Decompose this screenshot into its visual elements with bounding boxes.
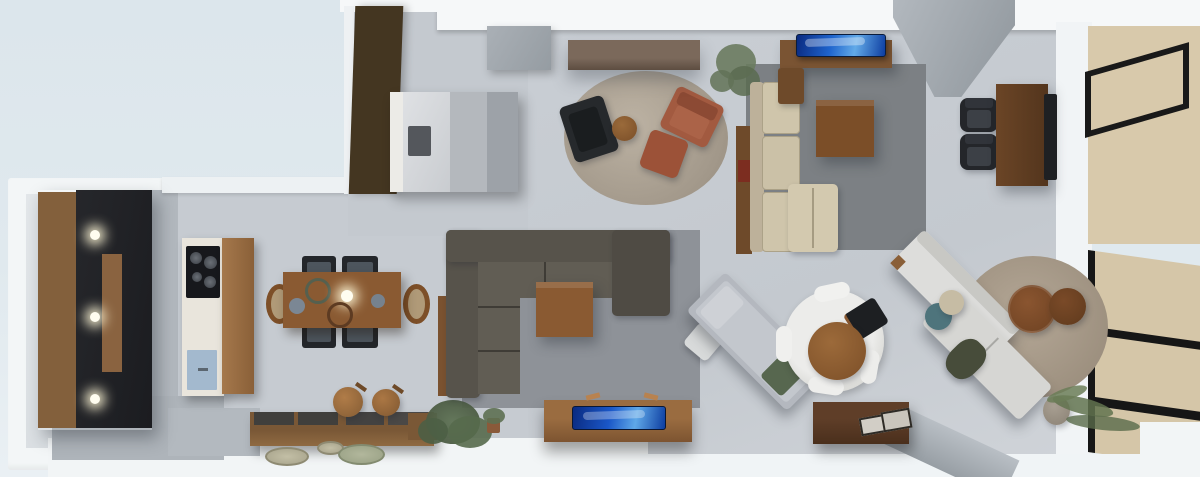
dining-chair-end-right — [403, 284, 430, 324]
sectional-beige[interactable] — [734, 64, 844, 256]
tv-bottom — [572, 406, 666, 430]
dining-set[interactable] — [262, 244, 434, 350]
table-plate-2 — [371, 294, 385, 308]
bed-headboard — [390, 92, 403, 192]
chair-seat — [967, 147, 991, 166]
burner-4 — [204, 276, 216, 288]
office-chair-2 — [960, 134, 998, 170]
office-chair-1 — [960, 98, 998, 132]
plant-pot-small[interactable] — [487, 418, 500, 433]
plant-bush-large[interactable] — [418, 398, 498, 450]
bed-tray — [408, 126, 431, 156]
tv-screen-glare — [805, 37, 865, 47]
chair-back-2 — [776, 326, 792, 362]
wardrobe-cabinet[interactable] — [38, 190, 152, 430]
plant-leaf-3 — [710, 70, 734, 92]
burner-3 — [192, 272, 202, 282]
cooktop — [186, 246, 220, 298]
bench-top-panel-1 — [254, 412, 294, 425]
sofa-books — [738, 160, 750, 182]
pillow-beige[interactable] — [939, 290, 964, 315]
sofa-chaise — [788, 184, 838, 252]
side-table-round[interactable] — [612, 116, 637, 141]
seat-seam — [478, 306, 520, 308]
sofa-chaise-right — [612, 230, 670, 316]
tv-console-bottom[interactable] — [542, 392, 694, 446]
kitchen-counter[interactable] — [182, 238, 224, 396]
wardrobe-spotlight-3 — [90, 394, 100, 404]
tv-screen-glare — [583, 410, 645, 420]
table-candle-light — [341, 290, 353, 302]
sofa-cushion-2 — [762, 136, 800, 190]
chair-seat — [347, 326, 373, 342]
desk-monitor — [1044, 94, 1057, 180]
wardrobe-wood-side — [38, 192, 78, 428]
bed[interactable] — [390, 92, 518, 192]
wood-stool-1 — [333, 387, 363, 417]
chair-seat — [307, 326, 331, 342]
wood-stool-2 — [372, 389, 400, 416]
seat-seam — [478, 350, 520, 352]
chair-seat — [967, 110, 991, 128]
office-desk-set[interactable] — [956, 82, 1060, 202]
round-table-set[interactable] — [782, 288, 888, 394]
chair-back — [965, 98, 993, 108]
dining-table — [283, 272, 401, 328]
bench-top-panel-2 — [298, 412, 338, 425]
sideboard-dark-brown[interactable] — [813, 400, 911, 446]
tv-top[interactable] — [796, 34, 886, 57]
wardrobe-spotlight-2 — [90, 312, 100, 322]
stool-handle — [392, 384, 404, 394]
kitchen-tall-cabinet[interactable] — [222, 238, 254, 394]
table-round-wood — [808, 322, 866, 380]
stool-handle — [355, 382, 367, 392]
floorplan-render — [0, 0, 1200, 477]
nesting-table-small[interactable] — [1049, 288, 1086, 325]
table-top-highlight — [816, 100, 874, 106]
bed-blanket — [450, 92, 487, 192]
sofa-seat-left — [478, 262, 520, 394]
floor-white-corner-bottom-right — [1140, 422, 1200, 477]
table-top-highlight — [536, 282, 593, 288]
chair-seat — [568, 106, 609, 153]
burner-1 — [190, 252, 202, 264]
floor-white-bottom-center — [640, 454, 1162, 477]
table-decor-wreath — [305, 278, 331, 304]
coffee-table-right[interactable] — [816, 100, 874, 157]
sofa-armrest-wood — [778, 68, 804, 104]
chair-back — [965, 134, 993, 144]
concrete-pillar — [487, 26, 551, 70]
floor-mat-1[interactable] — [265, 447, 309, 466]
dishwasher-handle — [198, 368, 208, 371]
table-plate-1 — [289, 298, 305, 314]
burner-2 — [204, 256, 217, 269]
plant-leaves — [483, 408, 505, 424]
wall-console-shelf[interactable] — [568, 40, 700, 70]
bed-blanket-folds — [487, 92, 518, 192]
chaise-seam — [812, 188, 814, 248]
office-desk — [996, 84, 1048, 186]
plant-leaf-3 — [418, 418, 448, 444]
wall-white-top-kitchen — [162, 177, 358, 193]
floor-mat-3[interactable] — [338, 444, 385, 465]
coffee-table-center[interactable] — [536, 282, 593, 337]
concrete-plinth-entry-2 — [168, 408, 260, 456]
wardrobe-shelf-inset — [102, 254, 122, 372]
table-decor-ring — [327, 302, 353, 328]
wardrobe-spotlight-1 — [90, 230, 100, 240]
